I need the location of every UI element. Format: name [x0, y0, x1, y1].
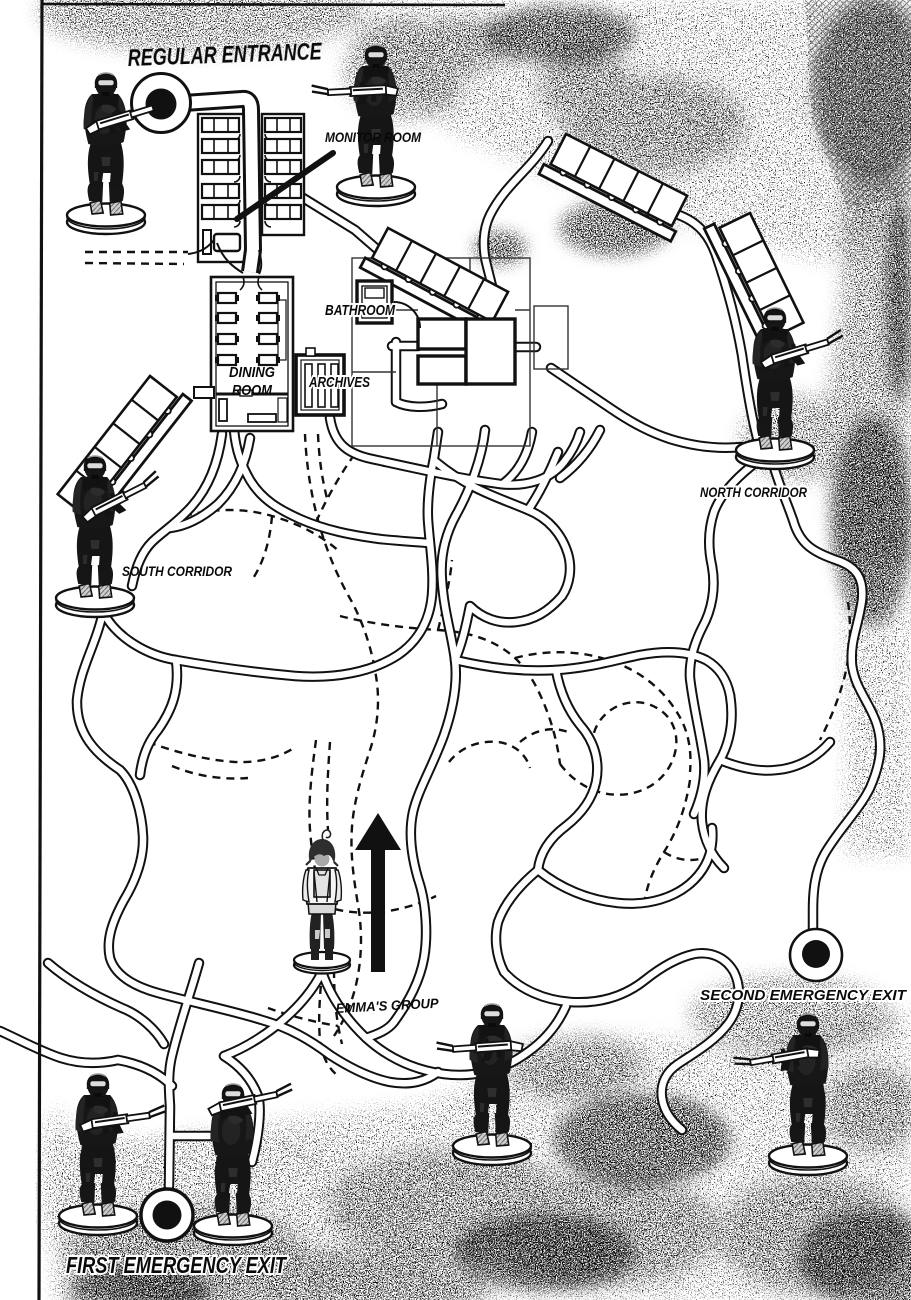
- svg-text:FIRST EMERGENCY EXIT: FIRST EMERGENCY EXIT: [66, 1252, 288, 1278]
- svg-text:MONITOR ROOM: MONITOR ROOM: [325, 129, 421, 145]
- svg-text:ROOM: ROOM: [232, 382, 272, 399]
- svg-text:NORTH CORRIDOR: NORTH CORRIDOR: [700, 485, 807, 500]
- svg-text:ARCHIVES: ARCHIVES: [308, 374, 370, 391]
- svg-text:BATHROOM: BATHROOM: [325, 303, 396, 319]
- svg-text:SOUTH CORRIDOR: SOUTH CORRIDOR: [122, 564, 232, 579]
- svg-text:DINING: DINING: [229, 364, 275, 381]
- svg-text:SECOND EMERGENCY EXIT: SECOND EMERGENCY EXIT: [700, 987, 908, 1004]
